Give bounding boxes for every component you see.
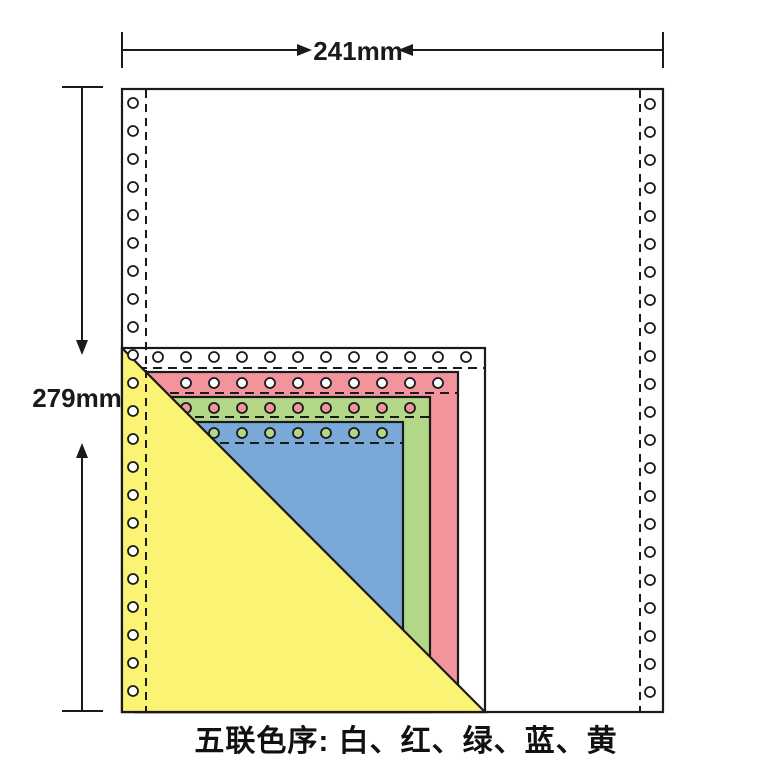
color-sequence-caption: 五联色序: 白、红、绿、蓝、黄 [20, 716, 772, 760]
width-dimension-label: 241mm [302, 36, 414, 67]
height-dimension-label: 279mm [22, 383, 132, 414]
five-ply-paper-diagram: 241mm 279mm 五联色序: 白、红、绿、蓝、黄 [0, 0, 772, 771]
